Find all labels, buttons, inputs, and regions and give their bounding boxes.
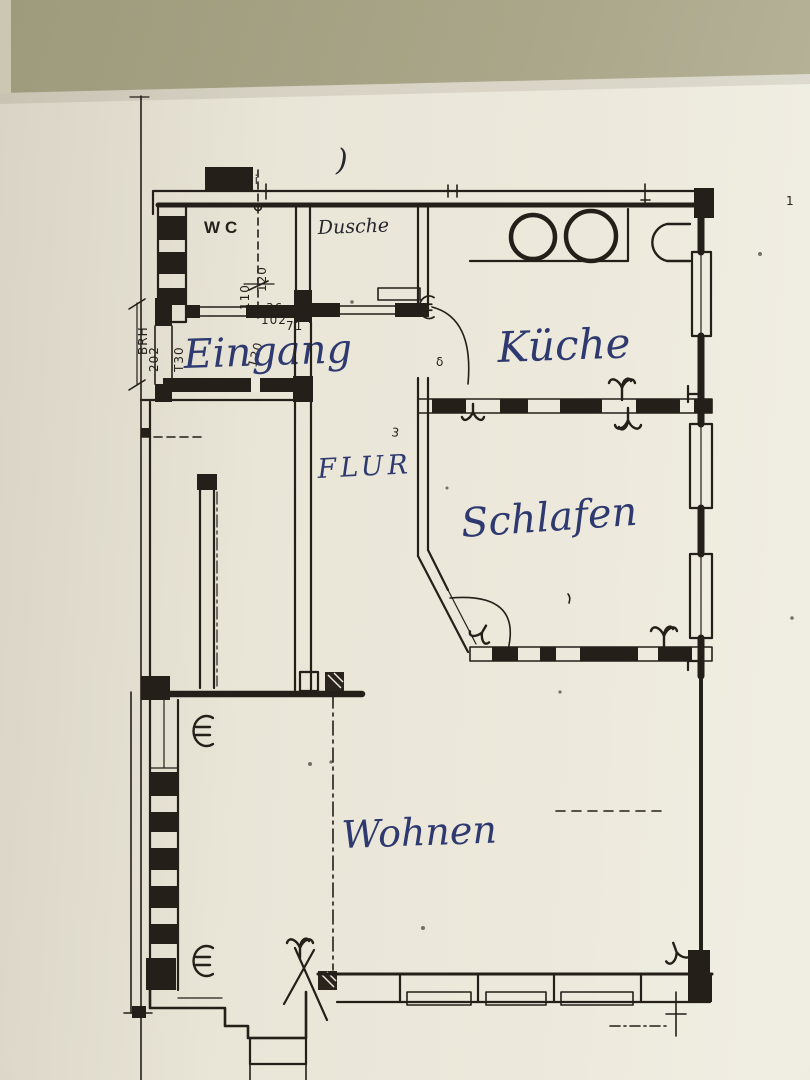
hatched-shaft: [325, 672, 344, 691]
dim-120: 120: [255, 266, 269, 292]
left-edge-strip: [0, 0, 11, 100]
door-small-mark: δ: [436, 355, 444, 369]
paren-mark: ): [335, 143, 348, 178]
margin-mark: 1: [786, 194, 795, 208]
kueche-label: Küche: [496, 318, 632, 372]
floorplan-drawing: 2i ) 1 BRH 202: [0, 0, 810, 1080]
parapet-height: 202: [147, 346, 161, 372]
dim-102: 102: [261, 313, 287, 327]
hatched-wall: [470, 647, 712, 661]
eingang-label: Eingang: [182, 326, 353, 378]
dim-110: 110: [238, 284, 252, 310]
wc-label: WC: [204, 218, 242, 237]
flur-label: FLUR: [316, 449, 413, 485]
hatched-wall: [418, 399, 712, 413]
dusche-label: Dusche: [316, 215, 389, 240]
floorplan-photo: 2i ) 1 BRH 202: [0, 0, 810, 1080]
wohnen-label: Wohnen: [341, 808, 498, 857]
top-note-text: 2i: [246, 173, 259, 187]
